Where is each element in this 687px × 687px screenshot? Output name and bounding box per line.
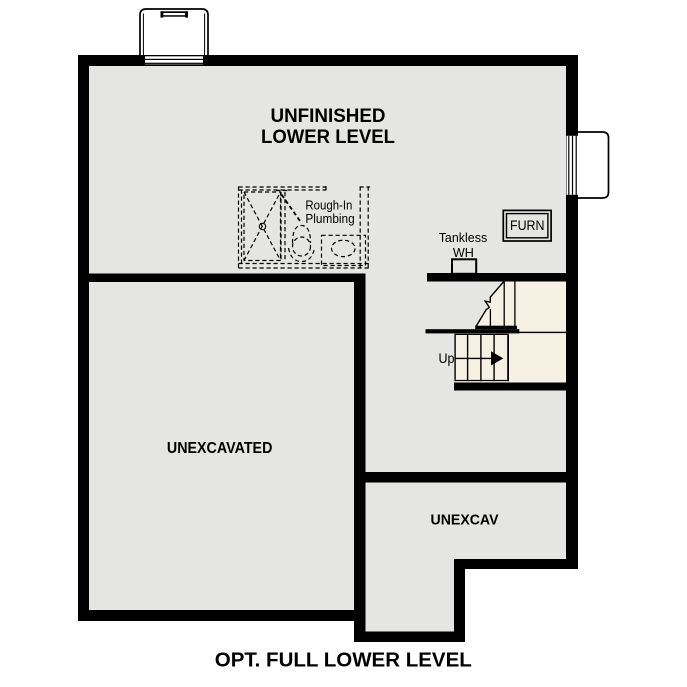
- svg-text:UNEXCAVATED: UNEXCAVATED: [167, 440, 273, 457]
- svg-text:FURN: FURN: [510, 217, 545, 233]
- svg-text:LOWER LEVEL: LOWER LEVEL: [261, 127, 395, 148]
- svg-text:WH: WH: [453, 245, 474, 260]
- svg-text:Plumbing: Plumbing: [305, 211, 354, 226]
- svg-text:OPT. FULL LOWER LEVEL: OPT. FULL LOWER LEVEL: [215, 650, 472, 672]
- svg-text:Tankless: Tankless: [439, 230, 488, 245]
- svg-text:UNEXCAV: UNEXCAV: [431, 511, 499, 528]
- svg-text:Up: Up: [439, 350, 455, 366]
- svg-text:UNFINISHED: UNFINISHED: [271, 106, 386, 127]
